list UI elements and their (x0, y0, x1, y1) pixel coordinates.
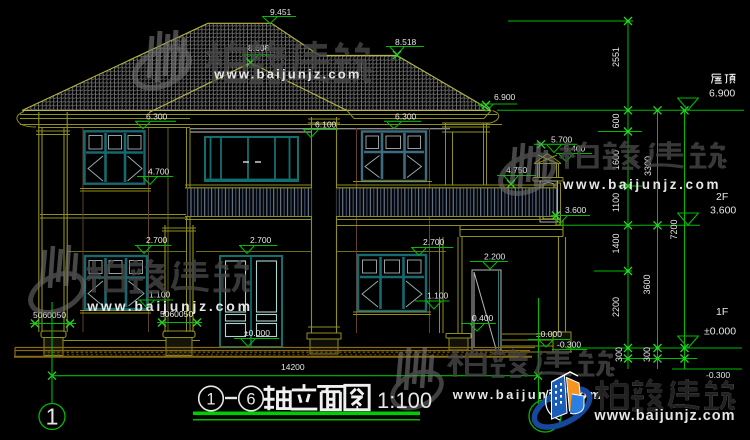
svg-text:6.900: 6.900 (494, 92, 516, 102)
svg-text:1: 1 (46, 404, 59, 430)
svg-text:±0.000: ±0.000 (704, 326, 736, 338)
svg-text:6.900: 6.900 (709, 88, 735, 100)
svg-text:1.100: 1.100 (427, 291, 449, 301)
svg-text:3.600: 3.600 (565, 205, 587, 215)
svg-text:1F: 1F (716, 306, 728, 318)
svg-text:6.100: 6.100 (315, 120, 337, 130)
svg-text:1: 1 (206, 391, 215, 409)
svg-text:6.300: 6.300 (146, 112, 168, 122)
svg-text:7200: 7200 (669, 219, 679, 239)
svg-text:2.700: 2.700 (146, 235, 168, 245)
svg-text:8.518: 8.518 (395, 37, 417, 47)
svg-text:1:100: 1:100 (377, 388, 432, 413)
svg-text:600: 600 (611, 113, 621, 128)
svg-text:±0.000: ±0.000 (244, 328, 270, 338)
svg-text:www.baijunjz.com: www.baijunjz.com (86, 298, 253, 314)
svg-text:6.300: 6.300 (395, 112, 417, 122)
svg-text:0.400: 0.400 (472, 313, 494, 323)
svg-text:300: 300 (642, 347, 652, 362)
svg-text:6: 6 (246, 391, 255, 409)
svg-text:www.baijunjz.com: www.baijunjz.com (213, 67, 361, 82)
svg-text:www.baijunjz.com: www.baijunjz.com (593, 408, 735, 424)
svg-text:www.baijunjz.com: www.baijunjz.com (562, 177, 721, 192)
svg-text:3.600: 3.600 (710, 205, 736, 217)
svg-text:2551: 2551 (611, 47, 621, 67)
svg-text:-0.300: -0.300 (706, 370, 730, 380)
svg-text:9.451: 9.451 (270, 7, 292, 17)
svg-text:2F: 2F (716, 191, 728, 203)
svg-text:1400: 1400 (611, 233, 621, 253)
svg-text:300: 300 (614, 347, 624, 362)
svg-text:1100: 1100 (611, 193, 621, 212)
svg-text:3600: 3600 (642, 274, 652, 294)
svg-text:2.200: 2.200 (484, 252, 506, 262)
svg-text:2.700: 2.700 (423, 237, 445, 247)
svg-text:2200: 2200 (611, 297, 621, 317)
svg-text:4.700: 4.700 (148, 167, 170, 177)
svg-text:14200: 14200 (281, 362, 305, 372)
svg-text:2.700: 2.700 (250, 235, 272, 245)
svg-text:±0.000: ±0.000 (536, 329, 562, 339)
